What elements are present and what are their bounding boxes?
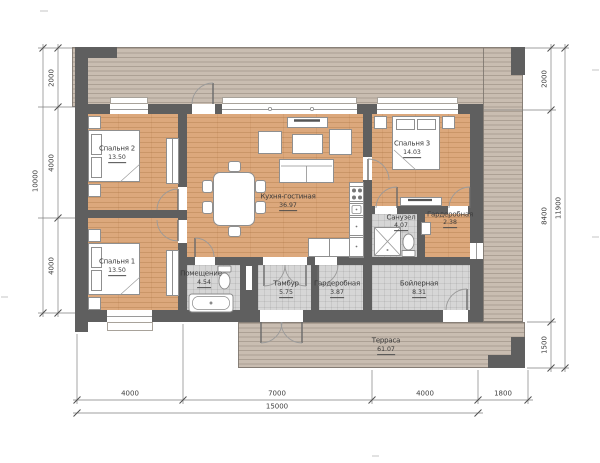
wardrobe-entry-floor: [319, 265, 363, 310]
dim-left-seg1: 2000: [49, 69, 56, 87]
terrace-step: [511, 337, 525, 368]
wardrobe-cabinet: [166, 138, 179, 184]
dim-right-seg1: 2000: [542, 70, 549, 88]
room-area-wardrobe-entry: 3.87: [330, 290, 344, 298]
area-value: 61.07: [377, 347, 395, 355]
nightstand: [88, 229, 101, 242]
room-area-bedroom1: 13.50: [108, 268, 126, 276]
vestibule-floor: [258, 265, 311, 310]
wall: [75, 47, 88, 332]
area-value: 14.03: [403, 150, 421, 158]
nightstand: [88, 184, 101, 197]
chair: [255, 201, 266, 214]
dim-left-total: 10000: [33, 170, 40, 192]
terrace-step: [488, 355, 512, 368]
room-label-boiler: Бойлерная: [400, 281, 438, 288]
room-area-kitchen-living: 36.97: [279, 203, 297, 211]
window-sill: [110, 97, 148, 104]
window: [107, 310, 152, 322]
room-area-terrace: 61.07: [377, 347, 395, 355]
window: [222, 104, 357, 114]
nightstand: [442, 116, 455, 129]
dim-bottom-seg2: 7000: [268, 391, 286, 398]
area-value: 8.31: [412, 290, 426, 298]
dim-right-total: 11900: [556, 197, 563, 219]
area-value: 2.38: [443, 220, 457, 228]
pillow: [396, 119, 415, 130]
room-area-bathroom: 4.07: [394, 223, 408, 231]
pillow: [91, 157, 102, 178]
room-label-terrace: Терраса: [372, 338, 401, 345]
room-area-wardrobe-master: 2.38: [443, 220, 457, 228]
entry-door-opening: [192, 104, 215, 114]
shower: [374, 227, 401, 256]
door-opening: [195, 257, 215, 265]
stove: [349, 186, 364, 202]
floor-plan-canvas: Спальня 2 13.50 Спальня 1 13.50 Спальня …: [0, 0, 600, 463]
area-value: 4.07: [394, 223, 408, 231]
room-label-bedroom1: Спальня 1: [99, 259, 135, 266]
window: [377, 104, 458, 114]
room-label-bathroom: Санузел: [387, 215, 416, 222]
area-value: 4.54: [197, 280, 211, 288]
room-area-bedroom3: 14.03: [403, 150, 421, 158]
armchair: [258, 131, 282, 154]
chair: [255, 180, 266, 193]
window: [110, 104, 148, 114]
room-label-vestibule: Тамбур: [273, 281, 299, 288]
dim-right-seg2: 8400: [542, 207, 549, 225]
dim-right-seg3: 1500: [542, 336, 549, 354]
sofa: [279, 159, 334, 183]
tv-dresser: [400, 197, 442, 206]
dim-bottom-seg1: 4000: [121, 391, 139, 398]
chair: [202, 201, 213, 214]
dim-left-seg2: 4000: [49, 154, 56, 172]
room-area-utility: 4.54: [197, 280, 211, 288]
door-opening: [315, 257, 337, 265]
shelf: [421, 222, 431, 235]
kitchen-cabinet: [349, 237, 364, 257]
chair: [202, 180, 213, 193]
nightstand: [88, 297, 101, 310]
pillow: [417, 119, 436, 130]
armchair: [329, 129, 352, 155]
boiler-door-opening: [443, 310, 468, 322]
room-label-kitchen-living: Кухня-гостиная: [260, 194, 315, 201]
room-label-wardrobe-entry: Гардеробная: [314, 281, 360, 288]
room-label-bedroom2: Спальня 2: [99, 146, 135, 153]
tv-stand: [287, 117, 328, 128]
wall: [417, 214, 425, 257]
boiler-floor: [372, 265, 470, 310]
area-value: 13.50: [108, 155, 126, 163]
coffee-table: [292, 134, 323, 154]
window-sill: [377, 97, 458, 104]
wall: [88, 47, 117, 58]
room-label-bedroom3: Спальня 3: [394, 141, 430, 148]
kitchen-island: [308, 238, 350, 257]
kitchen-cabinet: [349, 217, 364, 236]
room-label-utility: Помещение: [180, 271, 222, 278]
room-area-vestibule: 5.75: [279, 290, 293, 298]
area-value: 13.50: [108, 268, 126, 276]
door-opening: [178, 220, 187, 243]
wall: [511, 47, 525, 75]
area-value: 36.97: [279, 203, 297, 211]
door-opening: [246, 266, 252, 290]
area-value: 3.87: [330, 290, 344, 298]
wall: [75, 210, 187, 218]
wall: [311, 265, 319, 310]
window: [470, 243, 483, 259]
dining-table: [213, 172, 255, 226]
nightstand: [88, 116, 101, 129]
chair: [228, 226, 241, 237]
chair: [228, 161, 241, 172]
room-area-bedroom2: 13.50: [108, 155, 126, 163]
room-area-boiler: 8.31: [412, 290, 426, 298]
dim-bottom-seg4: 1800: [494, 391, 512, 398]
room-label-wardrobe-master: Гардеробная: [427, 212, 473, 219]
covered-deck-right: [483, 47, 523, 322]
door-opening: [363, 157, 372, 180]
door-opening: [263, 257, 307, 265]
dim-left-seg3: 4000: [49, 257, 56, 275]
dim-bottom-total: 15000: [266, 404, 288, 411]
terrace-floor: [238, 322, 525, 368]
window-sill: [222, 97, 357, 104]
area-value: 5.75: [279, 290, 293, 298]
window-sill: [107, 322, 153, 331]
terrace-door-opening: [260, 310, 303, 322]
door-opening: [178, 187, 187, 210]
pillow: [91, 270, 102, 291]
kitchen-sink: [349, 203, 364, 216]
wardrobe-cabinet: [166, 250, 179, 296]
dim-bottom-seg3: 4000: [416, 391, 434, 398]
nightstand: [374, 116, 387, 129]
